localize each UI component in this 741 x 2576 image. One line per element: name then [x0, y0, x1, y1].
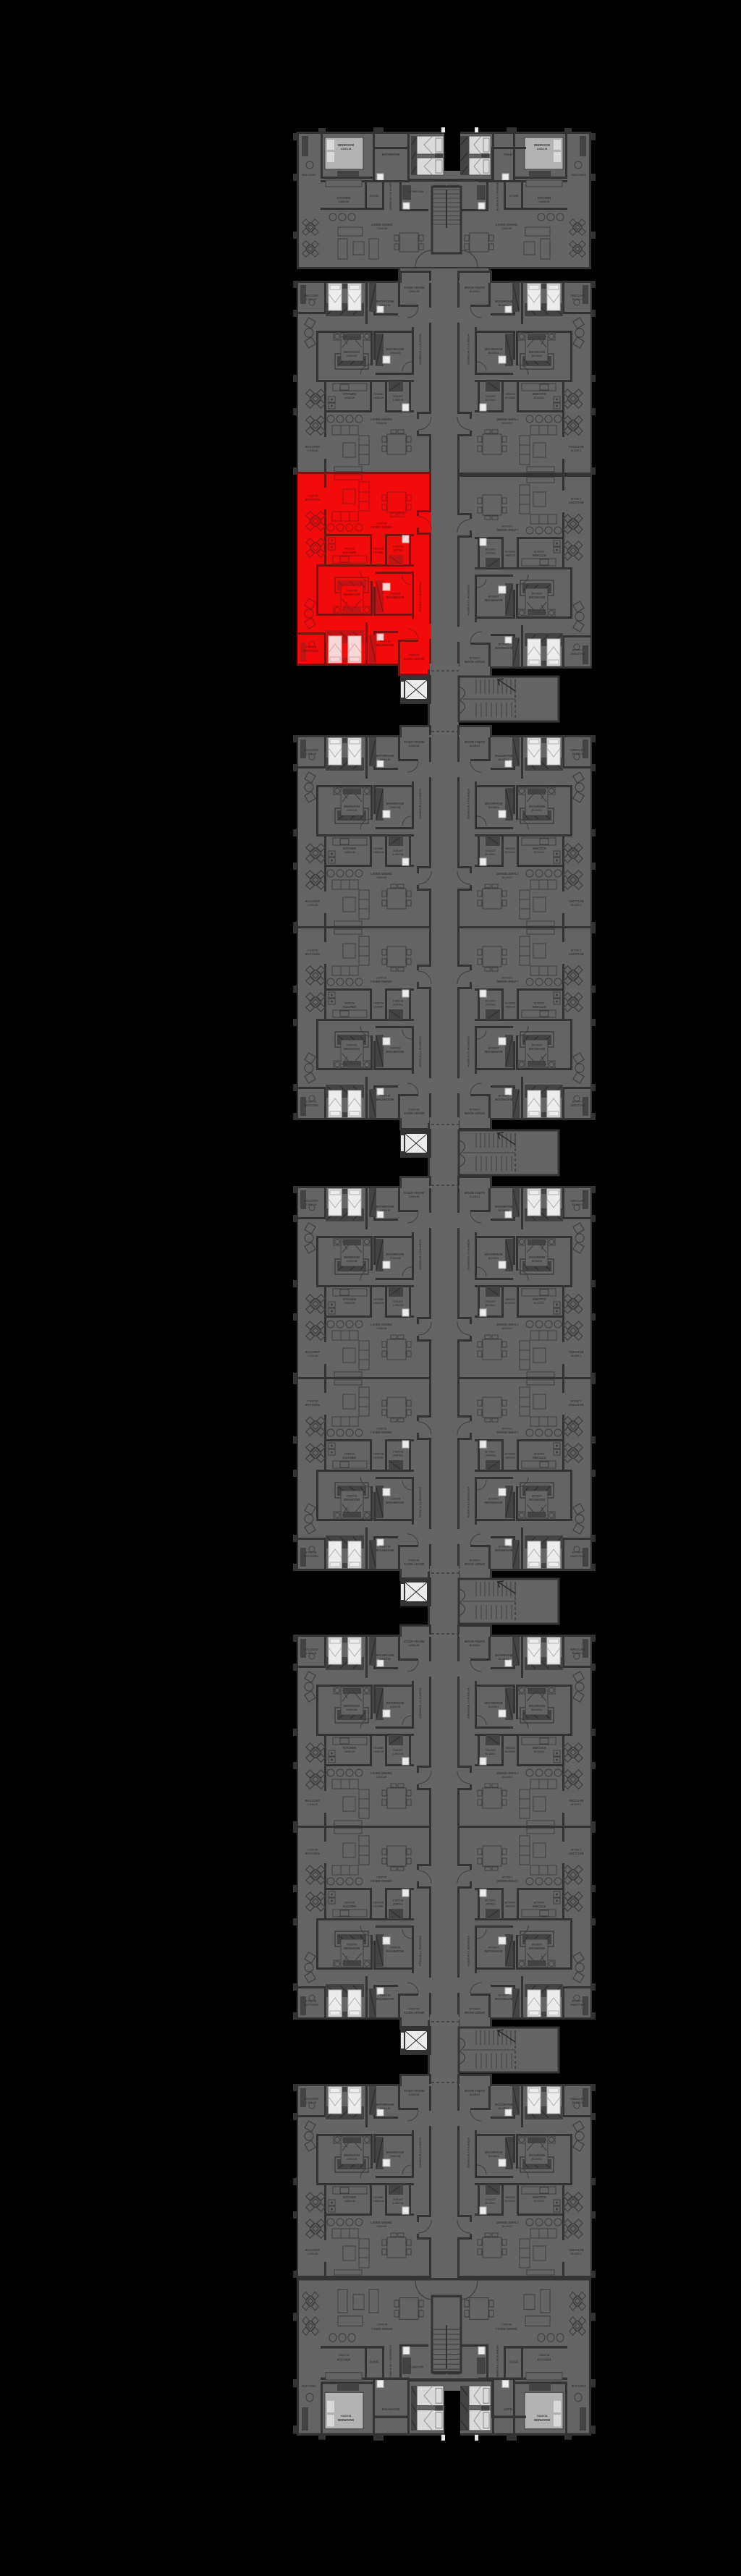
svg-text:BATHROOM: BATHROOM	[382, 153, 400, 156]
svg-text:STORE: STORE	[369, 195, 378, 198]
svg-text:KITCHEN: KITCHEN	[337, 196, 351, 200]
svg-text:LIVING DINING: LIVING DINING	[371, 223, 393, 226]
svg-text:2.65X2.05: 2.65X2.05	[539, 200, 550, 203]
svg-text:CORRIDOR 1.35 M WIDTH: CORRIDOR 1.35 M WIDTH	[389, 180, 392, 211]
svg-text:BALCONY: BALCONY	[302, 173, 316, 177]
svg-text:BEDROOM: BEDROOM	[534, 143, 550, 147]
svg-text:BATHROOM: BATHROOM	[407, 190, 423, 193]
svg-text:CORRIDOR 1.35 M WIDTH: CORRIDOR 1.35 M WIDTH	[496, 180, 499, 211]
svg-text:3.05X4.05: 3.05X4.05	[537, 148, 548, 151]
svg-text:BEDROOM: BEDROOM	[338, 143, 354, 147]
svg-text:7.00X3.50: 7.00X3.50	[501, 227, 512, 230]
svg-text:STORE: STORE	[509, 195, 518, 198]
svg-text:TOILET: TOILET	[504, 153, 515, 156]
svg-text:2.65X2.05: 2.65X2.05	[339, 200, 350, 203]
svg-text:LIVING DINING: LIVING DINING	[496, 223, 517, 226]
svg-text:BALCONY: BALCONY	[572, 173, 586, 177]
svg-text:7.00X3.50: 7.00X3.50	[377, 227, 388, 230]
svg-text:4.05X4.05: 4.05X4.05	[341, 148, 352, 151]
svg-text:KITCHEN: KITCHEN	[538, 196, 551, 200]
